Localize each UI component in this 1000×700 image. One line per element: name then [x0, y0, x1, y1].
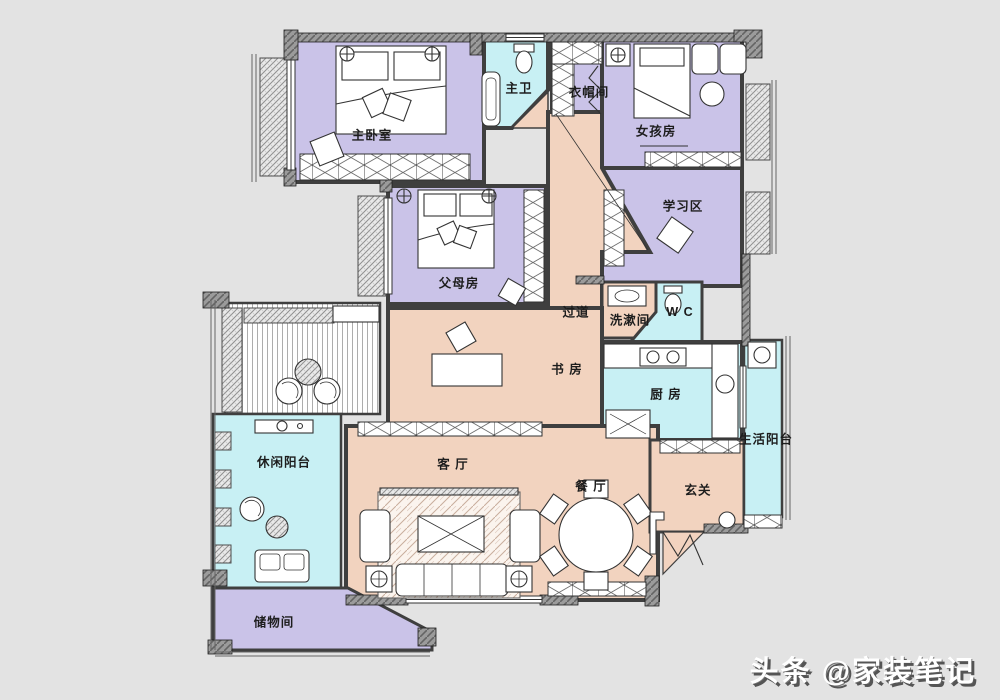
label-den: 书 房 — [551, 359, 582, 378]
plant-balcony-3 — [215, 508, 231, 526]
flowerbed-master-balcony — [260, 58, 290, 176]
flowerbed-parents — [358, 196, 386, 296]
label-kitchen: 厨 房 — [650, 384, 681, 403]
girls-wardrobe — [645, 152, 741, 167]
label-girls-room: 女孩房 — [636, 121, 677, 140]
label-master-bedroom: 主卧室 — [352, 125, 393, 144]
label-corridor: 过道 — [562, 302, 589, 321]
terrace-table — [295, 359, 321, 385]
label-dining-room: 餐 厅 — [575, 476, 606, 495]
flowerbed-girls-top — [746, 84, 770, 160]
washing-machine — [748, 342, 776, 368]
dining-table — [559, 498, 633, 572]
balcony-sofa — [255, 550, 309, 582]
parents-bed — [418, 190, 494, 268]
plants-terrace-top — [244, 308, 334, 323]
plant-balcony-1 — [215, 432, 231, 450]
armchair-right — [510, 510, 540, 562]
washroom-sink — [608, 286, 646, 306]
cloakroom-top-cabinet — [552, 42, 602, 64]
label-master-bath: 主卫 — [505, 78, 532, 97]
wc-tank — [664, 286, 682, 293]
plants-terrace-left — [222, 308, 242, 412]
label-wc: W C — [666, 305, 693, 319]
living-top-cabinet — [358, 422, 542, 436]
label-living-room: 客 厅 — [437, 454, 468, 473]
girls-bed — [634, 44, 690, 118]
balcony-table — [266, 516, 288, 538]
label-life-balcony: 生活阳台 — [739, 429, 793, 448]
plant-balcony-2 — [215, 470, 231, 488]
girls-sofa-1 — [692, 44, 718, 74]
bathtub — [482, 72, 500, 126]
entry-stool — [719, 512, 735, 528]
master-toilet-icon — [516, 51, 532, 73]
floor-plan-screen: 主卧室 主卫 衣帽间 女孩房 学习区 父母房 过道 洗漱间 W C 厨 房 书 … — [0, 0, 1000, 700]
girls-sofa-2 — [720, 44, 746, 74]
terrace-bench — [333, 306, 379, 322]
label-parents-room: 父母房 — [439, 273, 480, 292]
label-entry: 玄关 — [684, 480, 711, 499]
armchair-left — [360, 510, 390, 562]
den-table — [432, 354, 502, 386]
balcony-cabinet — [744, 515, 782, 528]
label-leisure-balcony: 休闲阳台 — [257, 452, 311, 471]
parents-wardrobe — [524, 190, 544, 302]
label-cloakroom: 衣帽间 — [569, 82, 610, 101]
flowerbed-girls-bottom — [746, 192, 770, 254]
label-washroom: 洗漱间 — [610, 310, 651, 329]
kitchen-side-counter — [712, 344, 738, 438]
tv-wall-curtain — [380, 488, 518, 495]
study-cabinet — [604, 190, 624, 266]
label-storage: 储物间 — [254, 612, 295, 631]
girls-ball — [700, 82, 724, 106]
watermark-text: 头条 @家装笔记 — [750, 648, 976, 690]
entry-cabinet — [660, 440, 740, 453]
plant-balcony-4 — [215, 545, 231, 563]
label-study-area: 学习区 — [663, 196, 704, 215]
floor-plan-svg — [0, 0, 1000, 700]
